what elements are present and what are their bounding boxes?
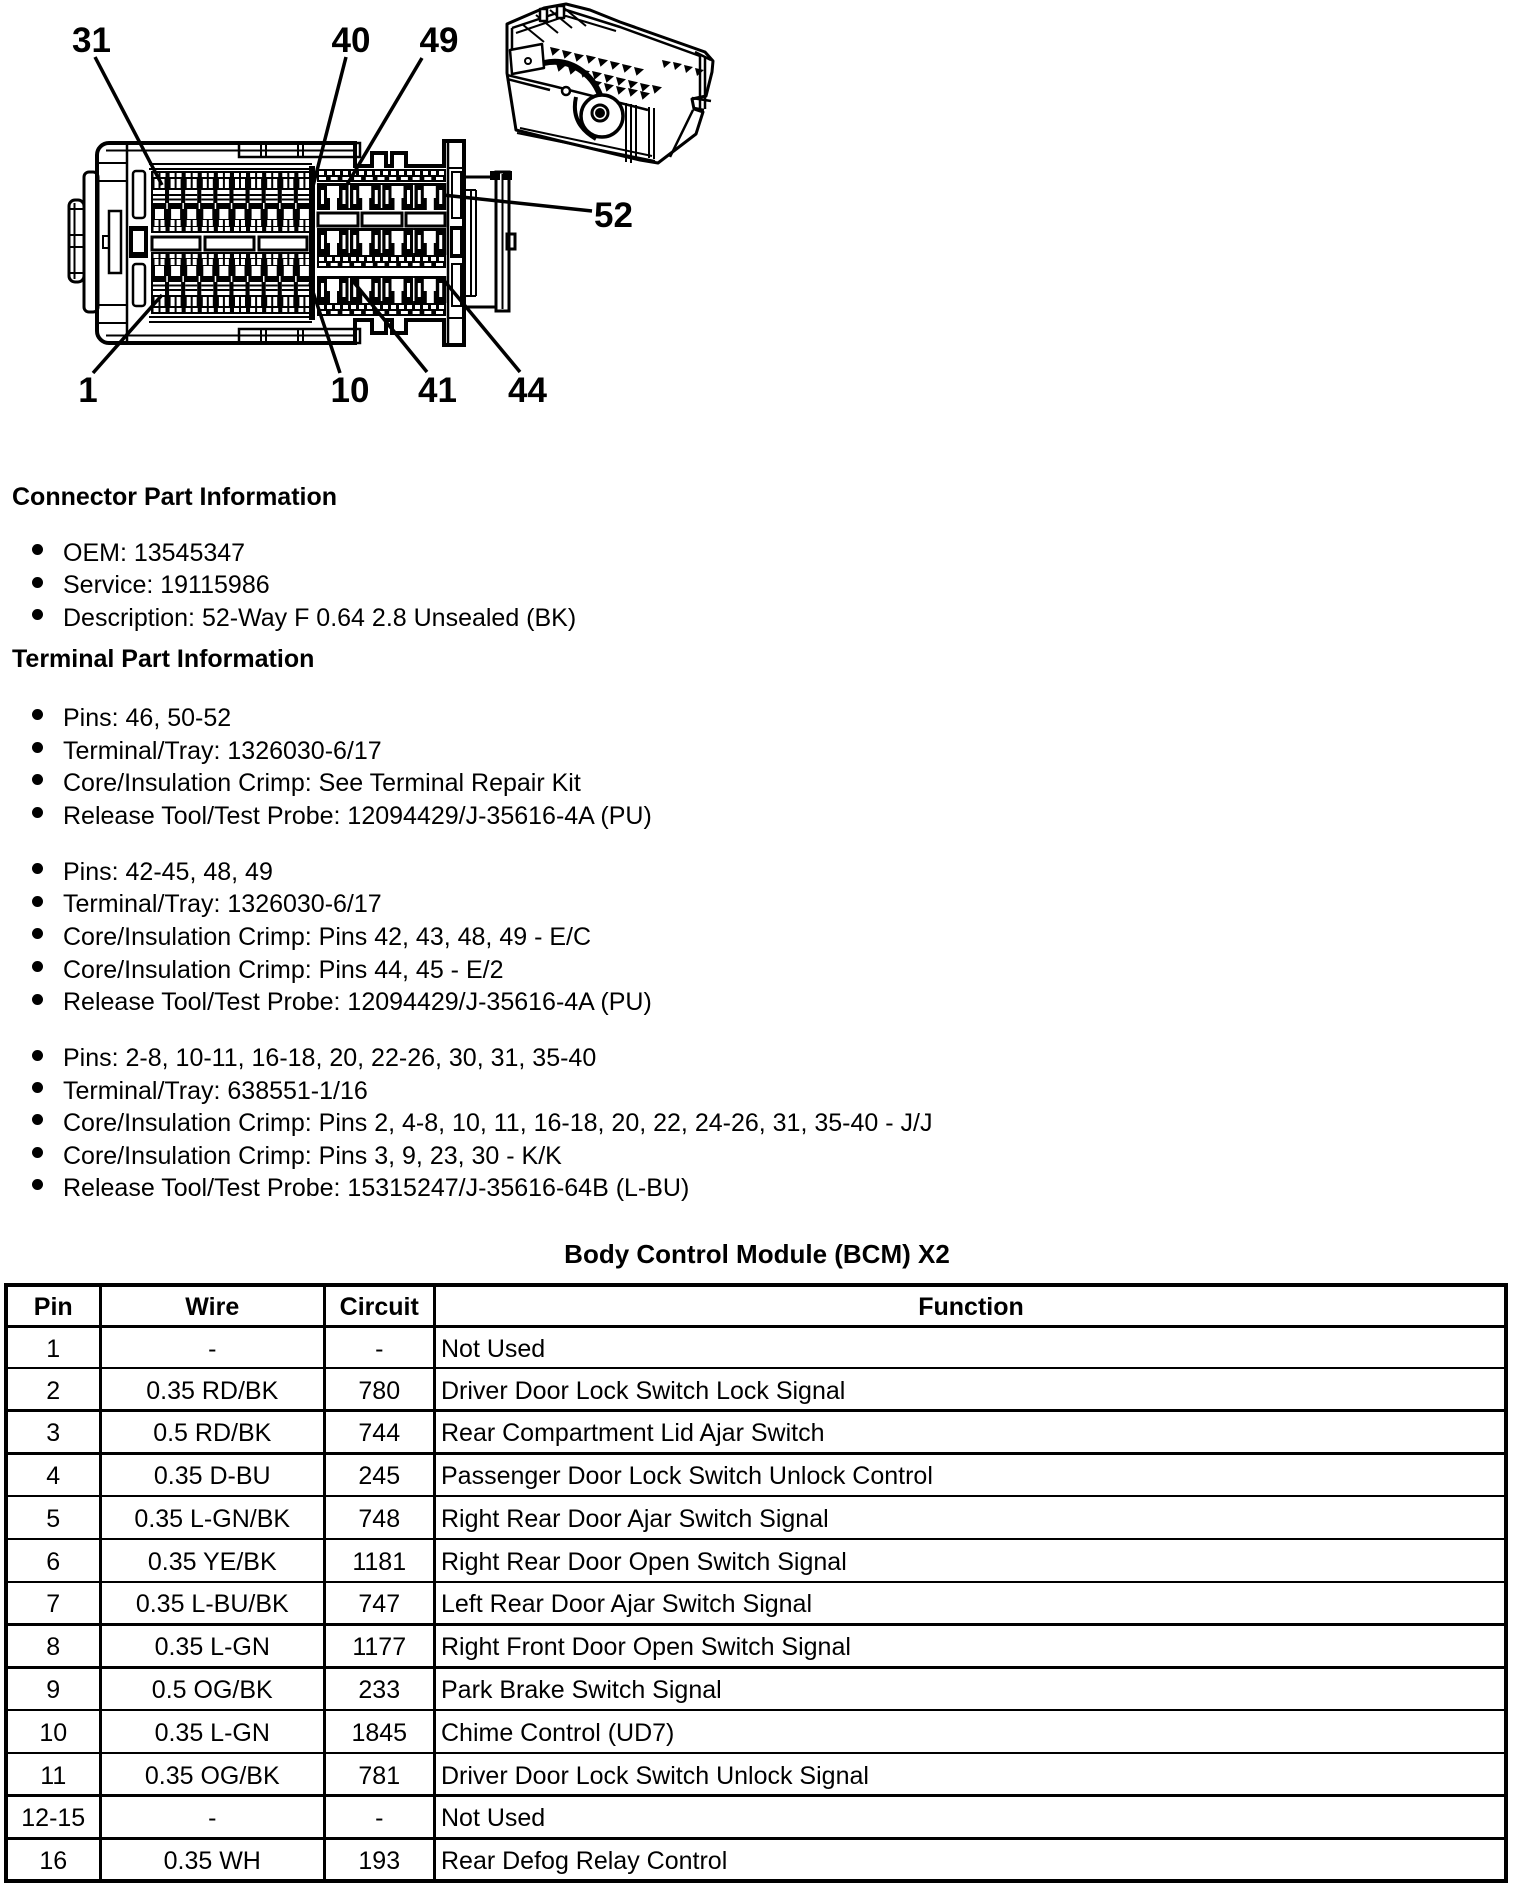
svg-text:31: 31 — [72, 21, 111, 60]
svg-text:41: 41 — [418, 371, 457, 410]
svg-text:1: 1 — [78, 371, 97, 410]
svg-text:49: 49 — [420, 21, 459, 60]
svg-text:10: 10 — [331, 371, 370, 410]
svg-text:52: 52 — [594, 196, 633, 235]
svg-text:44: 44 — [508, 371, 547, 410]
svg-text:40: 40 — [332, 21, 371, 60]
